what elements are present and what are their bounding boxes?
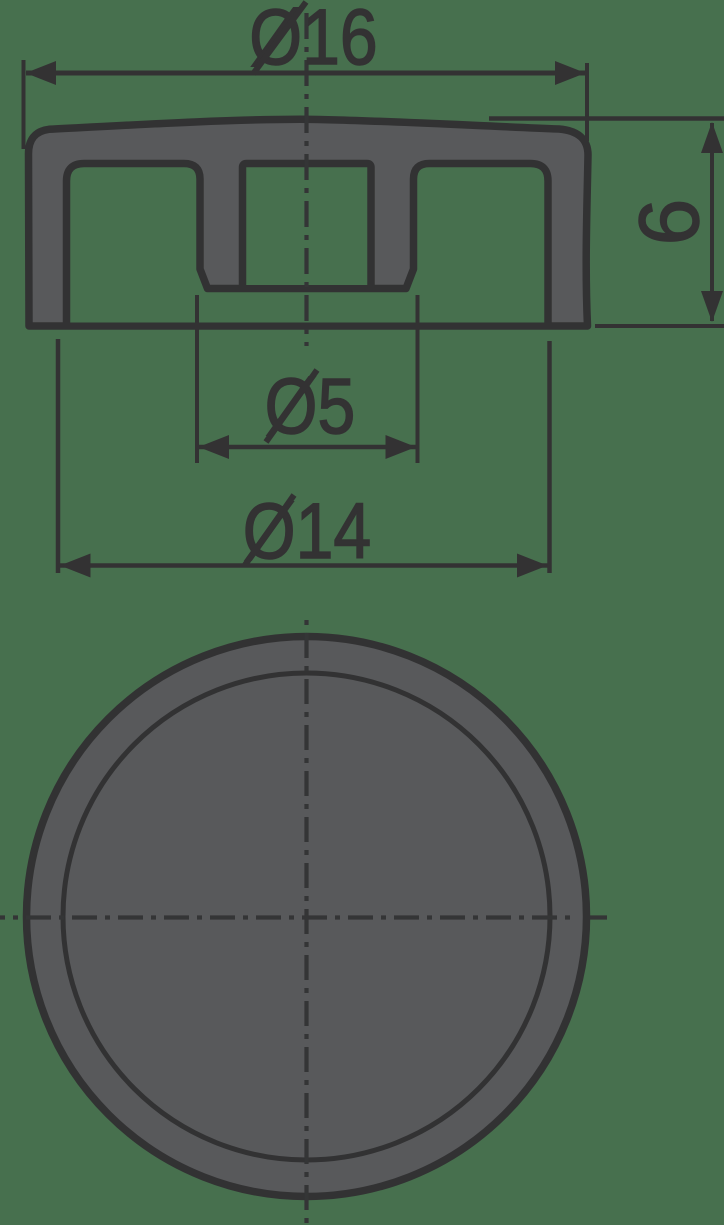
svg-text:Ø16: Ø16	[249, 0, 377, 81]
svg-text:6: 6	[622, 199, 716, 246]
svg-text:Ø14: Ø14	[243, 486, 371, 575]
svg-text:Ø5: Ø5	[265, 361, 356, 450]
